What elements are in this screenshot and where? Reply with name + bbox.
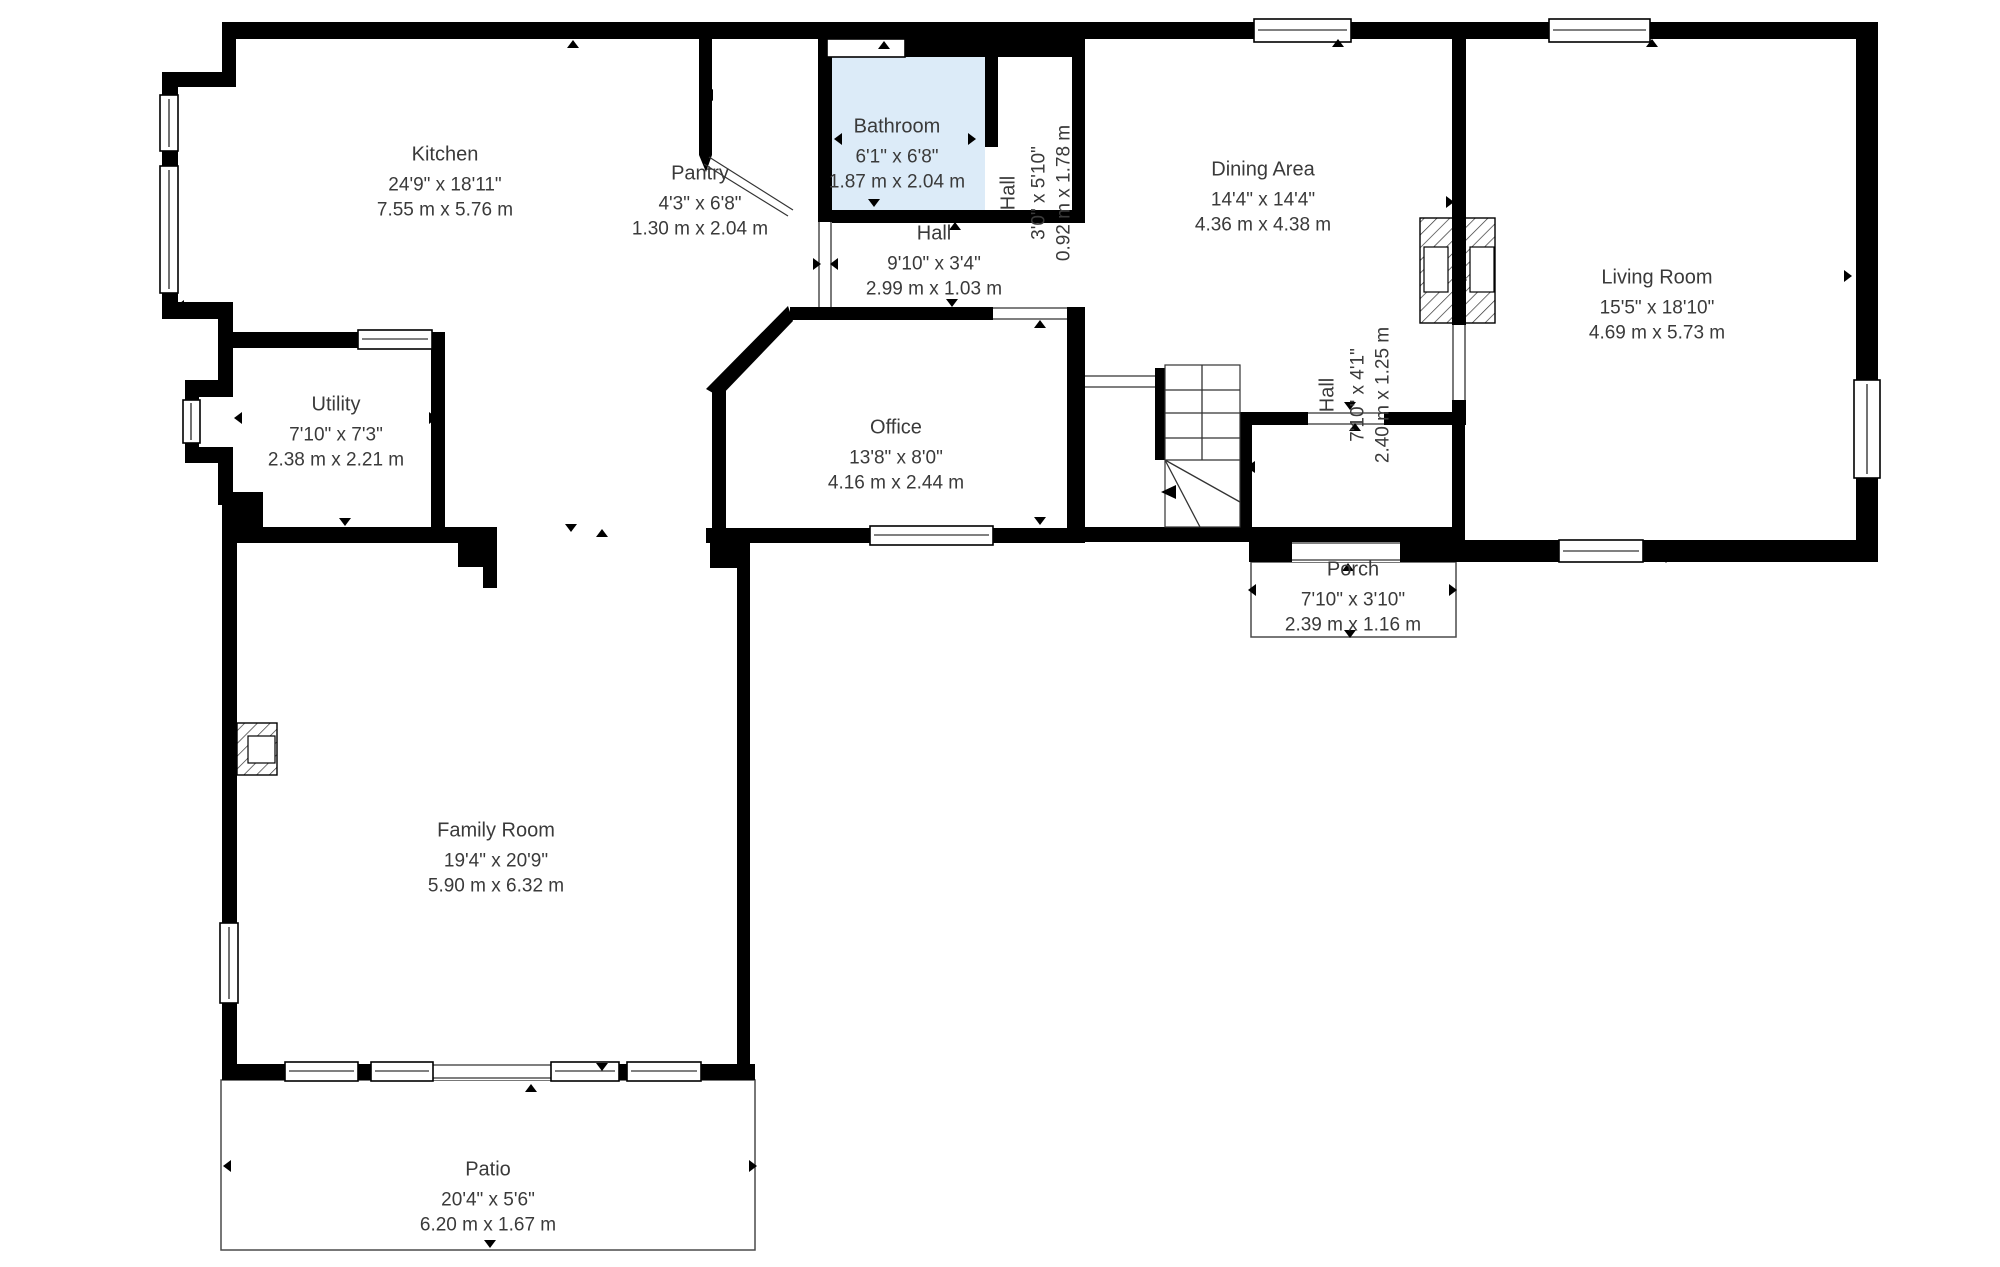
room-label-family-room: Family Room 19'4" x 20'9" 5.90 m x 6.32 …: [428, 817, 564, 898]
room-dim-imperial: 7'10" x 4'1": [1345, 327, 1370, 463]
stair-direction-arrow: [1161, 485, 1176, 499]
window: [220, 923, 238, 1003]
room-dim-imperial: 24'9" x 18'11": [377, 172, 513, 197]
room-dim-metric: 4.69 m x 5.73 m: [1589, 321, 1725, 346]
room-dim-imperial: 6'1" x 6'8": [829, 144, 965, 169]
room-name: Utility: [268, 391, 404, 417]
door-marker: [1034, 320, 1046, 328]
room-name: Hall: [1314, 327, 1340, 463]
room-dim-metric: 0.92 m x 1.78 m: [1052, 125, 1077, 261]
room-dim-imperial: 19'4" x 20'9": [428, 848, 564, 873]
room-label-patio: Patio 20'4" x 5'6" 6.20 m x 1.67 m: [420, 1156, 556, 1237]
room-name: Porch: [1285, 556, 1421, 582]
window: [827, 39, 905, 57]
room-dim-imperial: 20'4" x 5'6": [420, 1187, 556, 1212]
fireplace: [237, 723, 277, 775]
room-dim-imperial: 15'5" x 18'10": [1589, 295, 1725, 320]
window: [870, 526, 993, 545]
window: [160, 95, 178, 151]
staircase: [1161, 365, 1240, 527]
room-dim-metric: 2.99 m x 1.03 m: [866, 277, 1002, 302]
room-label-living-room: Living Room 15'5" x 18'10" 4.69 m x 5.73…: [1589, 264, 1725, 345]
door-marker: [339, 518, 351, 526]
room-label-pantry: Pantry 4'3" x 6'8" 1.30 m x 2.04 m: [632, 160, 768, 241]
door-marker: [234, 412, 242, 424]
room-dim-metric: 5.90 m x 6.32 m: [428, 874, 564, 899]
window: [1559, 540, 1643, 562]
room-dim-imperial: 4'3" x 6'8": [632, 191, 768, 216]
room-dim-metric: 2.39 m x 1.16 m: [1285, 613, 1421, 638]
room-name: Living Room: [1589, 264, 1725, 290]
room-label-bathroom: Bathroom 6'1" x 6'8" 1.87 m x 2.04 m: [829, 113, 965, 194]
room-name: Family Room: [428, 817, 564, 843]
room-dim-imperial: 7'10" x 7'3": [268, 422, 404, 447]
window: [1254, 19, 1351, 42]
room-name: Hall: [866, 220, 1002, 246]
door-marker: [596, 529, 608, 537]
room-dim-metric: 2.38 m x 2.21 m: [268, 448, 404, 473]
fireplace: [1420, 218, 1495, 325]
room-dim-imperial: 14'4" x 14'4": [1195, 187, 1331, 212]
openings: [433, 222, 1466, 1080]
room-label-office: Office 13'8" x 8'0" 4.16 m x 2.44 m: [828, 414, 964, 495]
room-name: Pantry: [632, 160, 768, 186]
room-label-porch: Porch 7'10" x 3'10" 2.39 m x 1.16 m: [1285, 556, 1421, 637]
room-dim-metric: 4.36 m x 4.38 m: [1195, 213, 1331, 238]
window: [358, 330, 432, 349]
room-dim-metric: 7.55 m x 5.76 m: [377, 198, 513, 223]
dining-living-opening: [1452, 325, 1466, 400]
room-label-kitchen: Kitchen 24'9" x 18'11" 7.55 m x 5.76 m: [377, 141, 513, 222]
room-name: Dining Area: [1195, 156, 1331, 182]
room-dim-imperial: 9'10" x 3'4": [866, 251, 1002, 276]
floor-plan: Kitchen 24'9" x 18'11" 7.55 m x 5.76 m P…: [0, 0, 2000, 1267]
room-dim-imperial: 13'8" x 8'0": [828, 445, 964, 470]
room-label-hall-upper: Hall 3'0" x 5'10" 0.92 m x 1.78 m: [995, 125, 1076, 261]
door-marker: [565, 524, 577, 532]
window: [1854, 380, 1880, 478]
room-dim-imperial: 7'10" x 3'10": [1285, 587, 1421, 612]
room-dim-metric: 1.87 m x 2.04 m: [829, 170, 965, 195]
room-label-hall-stairs: Hall 7'10" x 4'1" 2.40 m x 1.25 m: [1314, 327, 1395, 463]
window: [183, 400, 200, 443]
corridor-opening: [1085, 376, 1155, 387]
window: [1549, 19, 1650, 42]
door-marker: [567, 40, 579, 48]
window: [551, 1062, 619, 1081]
room-dim-metric: 6.20 m x 1.67 m: [420, 1213, 556, 1238]
room-dim-metric: 1.30 m x 2.04 m: [632, 217, 768, 242]
window: [627, 1062, 701, 1081]
room-name: Bathroom: [829, 113, 965, 139]
room-label-utility: Utility 7'10" x 7'3" 2.38 m x 2.21 m: [268, 391, 404, 472]
room-label-dining-area: Dining Area 14'4" x 14'4" 4.36 m x 4.38 …: [1195, 156, 1331, 237]
room-dim-metric: 2.40 m x 1.25 m: [1371, 327, 1396, 463]
room-name: Kitchen: [377, 141, 513, 167]
room-dim-imperial: 3'0" x 5'10": [1026, 125, 1051, 261]
room-name: Office: [828, 414, 964, 440]
patio-door-opening: [433, 1064, 551, 1080]
window: [285, 1062, 358, 1081]
room-label-hall-middle: Hall 9'10" x 3'4" 2.99 m x 1.03 m: [866, 220, 1002, 301]
door-marker: [1034, 517, 1046, 525]
door-marker: [1844, 270, 1852, 282]
window: [160, 166, 178, 293]
room-name: Patio: [420, 1156, 556, 1182]
office-door-opening: [993, 307, 1067, 320]
window: [371, 1062, 433, 1081]
room-dim-metric: 4.16 m x 2.44 m: [828, 471, 964, 496]
